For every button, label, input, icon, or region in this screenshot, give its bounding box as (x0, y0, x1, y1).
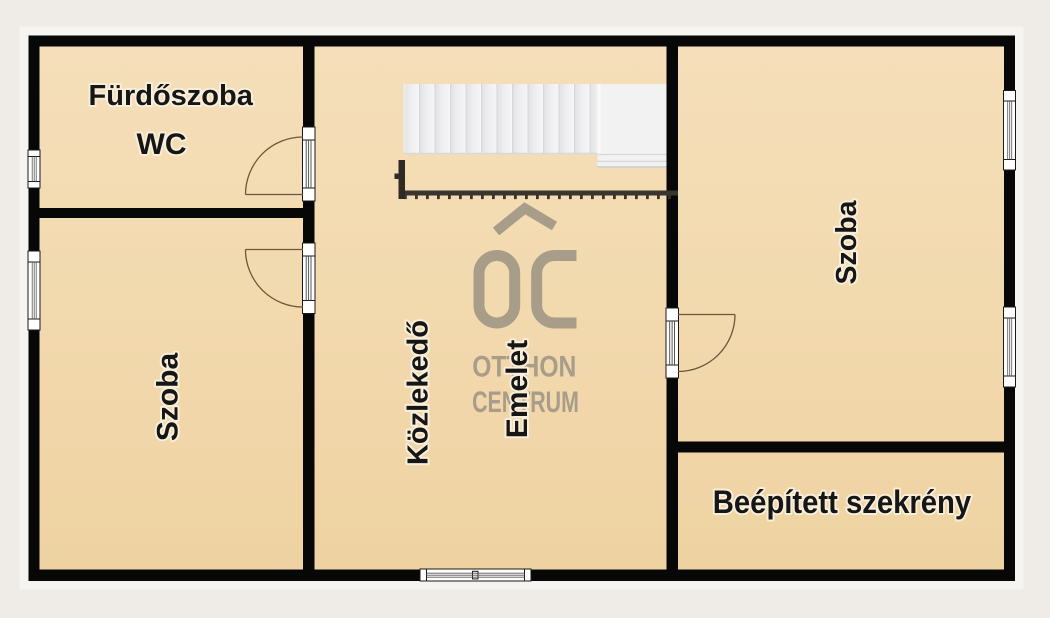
svg-text:Közlekedő: Közlekedő (403, 320, 435, 465)
svg-text:WC: WC (137, 128, 187, 161)
svg-text:Beépített szekrény: Beépített szekrény (713, 485, 971, 520)
svg-text:Emelet: Emelet (501, 340, 534, 438)
svg-text:Fürdőszoba: Fürdőszoba (89, 80, 254, 112)
svg-text:Szoba: Szoba (831, 199, 863, 284)
svg-text:Szoba: Szoba (152, 353, 185, 442)
